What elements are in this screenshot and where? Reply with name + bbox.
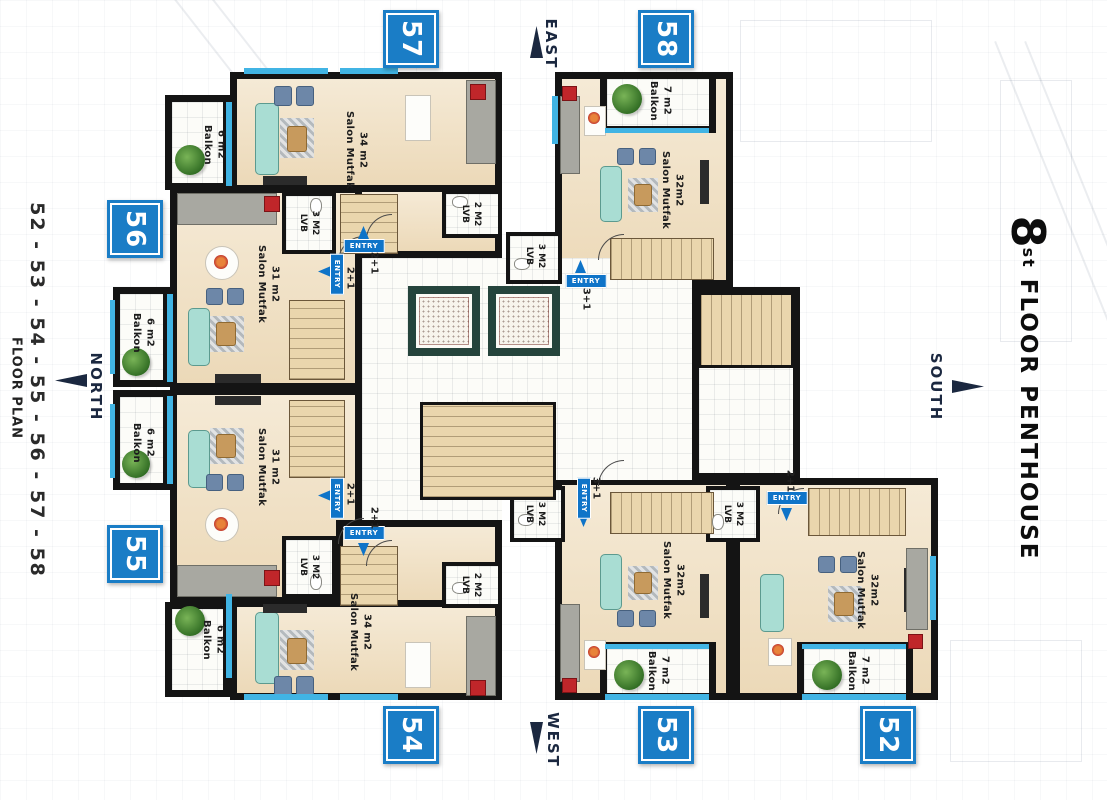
window [340, 68, 398, 74]
bath-label-58: LVB 3 M2 [523, 244, 547, 269]
room-name: LVB [297, 211, 309, 236]
room-name: Salon Mutfak [659, 151, 673, 229]
room-name: Salon Mutfak [255, 245, 269, 323]
armchair [274, 86, 292, 106]
kitchen-counter [177, 565, 277, 597]
compass-west: WEST [544, 712, 562, 768]
balcony-label-54: Balkon 6 m2 [200, 620, 227, 660]
unit-number: 53 [651, 716, 681, 754]
armchair [206, 288, 223, 305]
entry-badge-53: ENTRY [577, 478, 591, 519]
window [110, 404, 115, 478]
balcony-label-58: Balkon 7 m2 [647, 81, 674, 121]
room-name: LVB [523, 502, 535, 527]
room-area: 32m2 [672, 151, 686, 229]
balcony-label-55: Balkon 6 m2 [130, 423, 157, 463]
armchair [617, 610, 634, 627]
stove [470, 84, 486, 100]
room-name: LVB [459, 573, 471, 598]
unit-number: 58 [651, 20, 681, 58]
room-area: 7 m2 [660, 81, 674, 121]
room-area: 2 M2 [471, 573, 483, 598]
stove [264, 196, 280, 212]
room-name: Balkon [130, 423, 144, 463]
plan-type-52: 2+1 [785, 470, 796, 492]
tv-unit [215, 374, 261, 383]
armchair [296, 86, 314, 106]
unit-badge-57: 57 [383, 10, 439, 68]
unit-badge-58: 58 [638, 10, 694, 68]
plant [612, 84, 642, 114]
room-name: Balkon [201, 125, 215, 165]
coffee-table [216, 434, 236, 458]
window [605, 694, 709, 700]
window [226, 594, 232, 678]
staircase [420, 402, 556, 500]
entry-badge-52: ENTRY [767, 491, 808, 505]
staircase [289, 300, 345, 380]
sofa [760, 574, 784, 632]
plan-type-55: 2+1 [345, 483, 356, 505]
balcony-label-52: Balkon 7 m2 [845, 651, 872, 691]
blueprint-box [740, 20, 932, 142]
salon-label-52: Salon Mutfak 32m2 [854, 551, 881, 629]
room-area: 6 m2 [143, 423, 157, 463]
coffee-table [287, 638, 307, 664]
kitchen-counter [906, 548, 928, 630]
armchair [274, 676, 292, 696]
coffee-table [634, 572, 652, 594]
armchair [639, 610, 656, 627]
dining-table [405, 95, 431, 141]
plan-type-58: 3+1 [581, 288, 592, 310]
tv-unit [700, 160, 709, 204]
staircase [808, 488, 906, 536]
tv-unit [263, 604, 307, 613]
room-name: LVB [523, 244, 535, 269]
sofa [188, 308, 210, 366]
sofa [600, 166, 622, 222]
bath-label-54: LVB 2 M2 [459, 573, 483, 598]
room-area: 3 M2 [309, 211, 321, 236]
unit-number: 52 [873, 716, 903, 754]
room-area: 34 m2 [360, 593, 374, 671]
salon-label-57: Salon Mutfak 34 m2 [343, 111, 370, 189]
salon-label-54: Salon Mutfak 34 m2 [347, 593, 374, 671]
salon-label-56: Salon Mutfak 31 m2 [255, 245, 282, 323]
entry-badge-58: ENTRY [566, 274, 607, 288]
kitchen-counter [560, 604, 580, 682]
tv-unit [215, 396, 261, 405]
room-area: 31 m2 [268, 428, 282, 506]
table-decor [214, 255, 228, 269]
unit-number: 55 [120, 535, 150, 573]
stove [562, 86, 577, 101]
room-name: Salon Mutfak [660, 541, 674, 619]
unit-number: 57 [396, 20, 426, 58]
staircase [289, 400, 345, 478]
floor-title-text: FLOOR PENTHOUSE [1015, 269, 1041, 561]
units-range-label: 52 - 53 - 54 - 55 - 56 - 57 - 58 [26, 202, 48, 578]
window [605, 128, 709, 133]
room-name: Balkon [200, 620, 214, 660]
window [802, 694, 906, 700]
armchair [296, 676, 314, 696]
window [802, 644, 906, 649]
coffee-table [834, 592, 854, 616]
coffee-table [216, 322, 236, 346]
window [167, 294, 173, 382]
room-name: LVB [297, 555, 309, 580]
room-name: Balkon [647, 81, 661, 121]
room-area: 32m2 [673, 541, 687, 619]
plan-type-57: 2+1 [369, 252, 380, 274]
kitchen-counter [177, 193, 277, 225]
room-area: 32m2 [867, 551, 881, 629]
stove [264, 570, 280, 586]
room-name: LVB [721, 502, 733, 527]
floor-suffix: st [1019, 248, 1038, 269]
staircase [610, 238, 714, 280]
floor-title: 8st FLOOR PENTHOUSE [1001, 216, 1055, 561]
room-area: 6 m2 [213, 620, 227, 660]
window [930, 556, 936, 620]
plant [614, 660, 644, 690]
bath-label-57: LVB 2 M2 [459, 202, 483, 227]
window [340, 694, 398, 700]
staircase [698, 292, 794, 368]
table-decor [214, 517, 228, 531]
compass-east: EAST [542, 19, 560, 70]
unit-badge-55: 55 [107, 525, 163, 583]
armchair [206, 474, 223, 491]
unit-badge-54: 54 [383, 706, 439, 764]
armchair [639, 148, 656, 165]
room-area: 6 m2 [214, 125, 228, 165]
entry-badge-55: ENTRY [330, 478, 344, 519]
armchair [818, 556, 835, 573]
balcony-label-56: Balkon 6 m2 [130, 313, 157, 353]
elevator-2 [488, 286, 560, 356]
room-name: Salon Mutfak [343, 111, 357, 189]
room-area: 7 m2 [658, 651, 672, 691]
kitchen-counter [560, 96, 580, 174]
plant [812, 660, 842, 690]
room-area: 34 m2 [356, 111, 370, 189]
room-name: LVB [459, 202, 471, 227]
balcony-label-57: Balkon 6 m2 [201, 125, 228, 165]
window [552, 96, 558, 144]
floor-plan-canvas: 57 58 56 55 54 53 52 Salon Mutfak 34 m2 … [0, 0, 1107, 800]
blueprint-box [950, 640, 1082, 762]
window [110, 300, 115, 374]
room-area: 3 M2 [535, 502, 547, 527]
plan-type-54: 2+1 [369, 507, 380, 529]
tv-unit [263, 176, 307, 185]
unit-number: 54 [396, 716, 426, 754]
sofa [600, 554, 622, 610]
room-area: 7 m2 [858, 651, 872, 691]
armchair [227, 288, 244, 305]
salon-label-58: Salon Mutfak 32m2 [659, 151, 686, 229]
room-name: Balkon [845, 651, 859, 691]
stove [562, 678, 577, 693]
stove [470, 680, 486, 696]
coffee-table [287, 126, 307, 152]
bath-label-53: LVB 3 M2 [523, 502, 547, 527]
window [244, 68, 328, 74]
bath-label-55: LVB 3 M2 [297, 555, 321, 580]
armchair [617, 148, 634, 165]
bath-label-56: LVB 3 M2 [297, 211, 321, 236]
room-name: Salon Mutfak [347, 593, 361, 671]
stove [908, 634, 923, 649]
compass-north: NORTH [87, 353, 105, 422]
sofa [255, 612, 279, 684]
table-decor [772, 644, 784, 656]
room-name: Salon Mutfak [854, 551, 868, 629]
compass-south: SOUTH [927, 353, 945, 422]
room-area: 2 M2 [471, 202, 483, 227]
room-area: 3 M2 [309, 555, 321, 580]
armchair [227, 474, 244, 491]
room-area: 31 m2 [268, 245, 282, 323]
window [605, 644, 709, 649]
unit-badge-53: 53 [638, 706, 694, 764]
bath-label-52: LVB 3 M2 [721, 502, 745, 527]
staircase [610, 492, 714, 534]
sofa [255, 103, 279, 175]
balcony-label-53: Balkon 7 m2 [645, 651, 672, 691]
window [167, 396, 173, 484]
room-area: 3 M2 [535, 244, 547, 269]
unit-badge-56: 56 [107, 200, 163, 258]
tv-unit [700, 574, 709, 618]
coffee-table [634, 184, 652, 206]
room-name: Balkon [645, 651, 659, 691]
table-decor [588, 646, 600, 658]
unit-number: 56 [120, 210, 150, 248]
salon-label-53: Salon Mutfak 32m2 [660, 541, 687, 619]
dining-table [405, 642, 431, 688]
window [244, 694, 328, 700]
plan-type-56: 2+1 [345, 267, 356, 289]
floor-plan-label: FLOOR PLAN [9, 337, 24, 439]
room-area: 6 m2 [143, 313, 157, 353]
room-area: 3 M2 [733, 502, 745, 527]
plan-type-53: 3+1 [591, 477, 602, 499]
entry-badge-56: ENTRY [330, 254, 344, 295]
elevator-1 [408, 286, 480, 356]
table-decor [588, 112, 600, 124]
room-name: Balkon [130, 313, 144, 353]
unit-badge-52: 52 [860, 706, 916, 764]
room-name: Salon Mutfak [255, 428, 269, 506]
floor-number: 8 [1001, 216, 1055, 248]
salon-label-55: Salon Mutfak 31 m2 [255, 428, 282, 506]
